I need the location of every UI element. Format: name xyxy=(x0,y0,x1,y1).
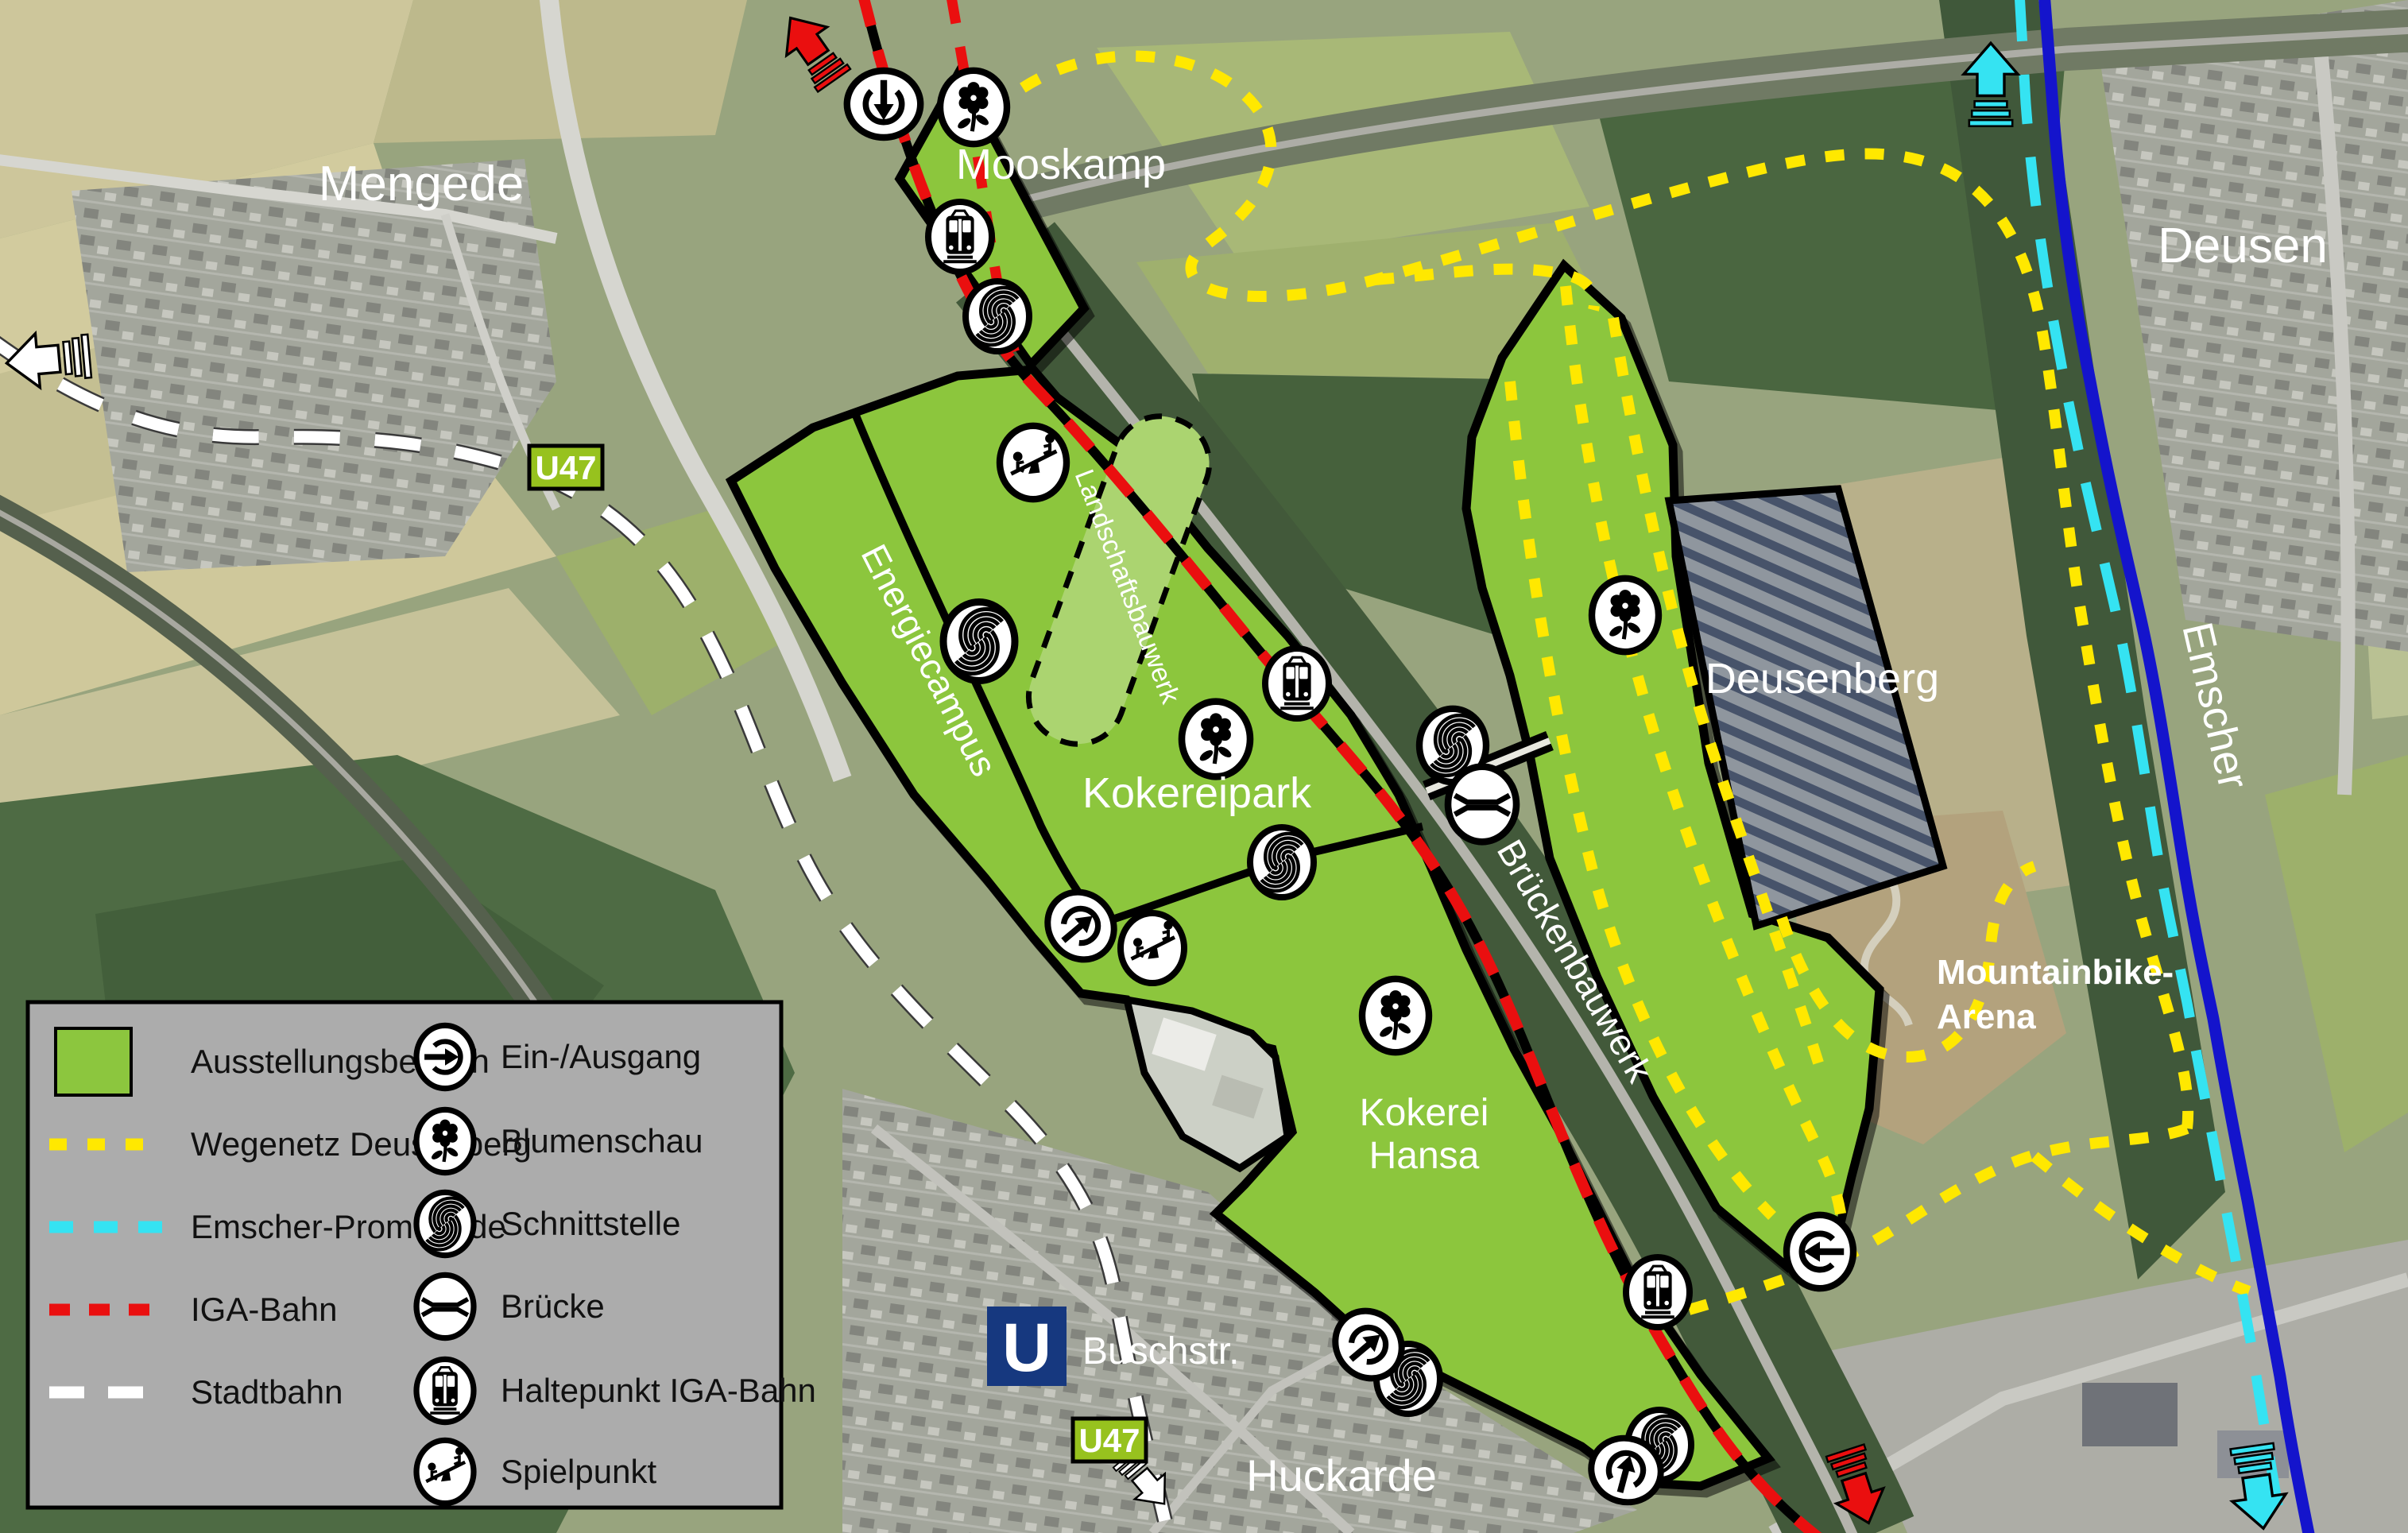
label-arena: Arena xyxy=(1937,997,2036,1036)
tram-icon xyxy=(1626,1257,1690,1327)
flower-icon xyxy=(940,71,1007,144)
legend-item-icon-0: Ein-/Ausgang xyxy=(501,1038,701,1075)
playground-icon xyxy=(416,1440,474,1503)
ubahn-station-badge: U xyxy=(987,1307,1067,1386)
badge-label: U47 xyxy=(535,449,596,486)
label-hansa: Hansa xyxy=(1369,1135,1480,1177)
legend-item-icon-3: Brücke xyxy=(501,1287,605,1325)
entrance-icon xyxy=(847,71,920,137)
flower-icon xyxy=(416,1109,474,1172)
label-buschstr: Buschstr. xyxy=(1082,1330,1239,1372)
playground-icon xyxy=(1000,426,1067,499)
ubahn-station-label: U xyxy=(1002,1310,1051,1386)
legend-item-0: Wegenetz Deusenberg xyxy=(191,1125,532,1163)
label-mengede: Mengede xyxy=(319,157,525,211)
legend-item-icon-1: Blumenschau xyxy=(501,1122,703,1159)
map-canvas: U47U47U MengedeDeusenMooskampEnergiecamp… xyxy=(0,0,2408,1533)
interface-icon xyxy=(416,1190,474,1258)
legend-item-3: Stadtbahn xyxy=(191,1373,343,1411)
label-mooskamp: Mooskamp xyxy=(956,141,1166,188)
bridge-icon xyxy=(416,1275,474,1338)
label-deusen: Deusen xyxy=(2158,219,2328,273)
playground-icon xyxy=(1121,913,1184,983)
legend: AusstellungsbereichWegenetz DeusenbergEm… xyxy=(28,1002,816,1508)
tram-icon xyxy=(1265,648,1329,718)
flower-icon xyxy=(1182,702,1250,777)
interface-icon xyxy=(966,278,1029,354)
entrance-icon xyxy=(1787,1215,1853,1288)
tram-icon xyxy=(928,202,992,272)
entrance-icon xyxy=(416,1025,474,1088)
label-kokereipark: Kokereipark xyxy=(1082,769,1312,817)
flower-icon xyxy=(1362,979,1429,1052)
label-huckarde: Huckarde xyxy=(1246,1450,1437,1500)
bridge-icon xyxy=(1448,767,1516,842)
legend-area-swatch xyxy=(56,1028,131,1095)
label-mountainbike: Mountainbike- xyxy=(1937,953,2174,992)
flower-icon xyxy=(1592,579,1659,652)
legend-item-icon-2: Schnittstelle xyxy=(501,1205,680,1242)
map-stage: U47U47U MengedeDeusenMooskampEnergiecamp… xyxy=(0,0,2408,1533)
label-deusenberg: Deusenberg xyxy=(1705,655,1939,703)
badge-u47-south: U47 xyxy=(1073,1419,1146,1461)
badge-u47-west: U47 xyxy=(529,446,602,489)
label-kokerei: Kokerei xyxy=(1360,1092,1489,1134)
legend-item-icon-4: Haltepunkt IGA-Bahn xyxy=(501,1372,816,1409)
legend-item-icon-5: Spielpunkt xyxy=(501,1453,656,1490)
interface-icon xyxy=(1250,824,1314,900)
badge-label: U47 xyxy=(1078,1422,1140,1459)
tram-icon xyxy=(416,1359,474,1422)
legend-item-2: IGA-Bahn xyxy=(191,1291,337,1328)
